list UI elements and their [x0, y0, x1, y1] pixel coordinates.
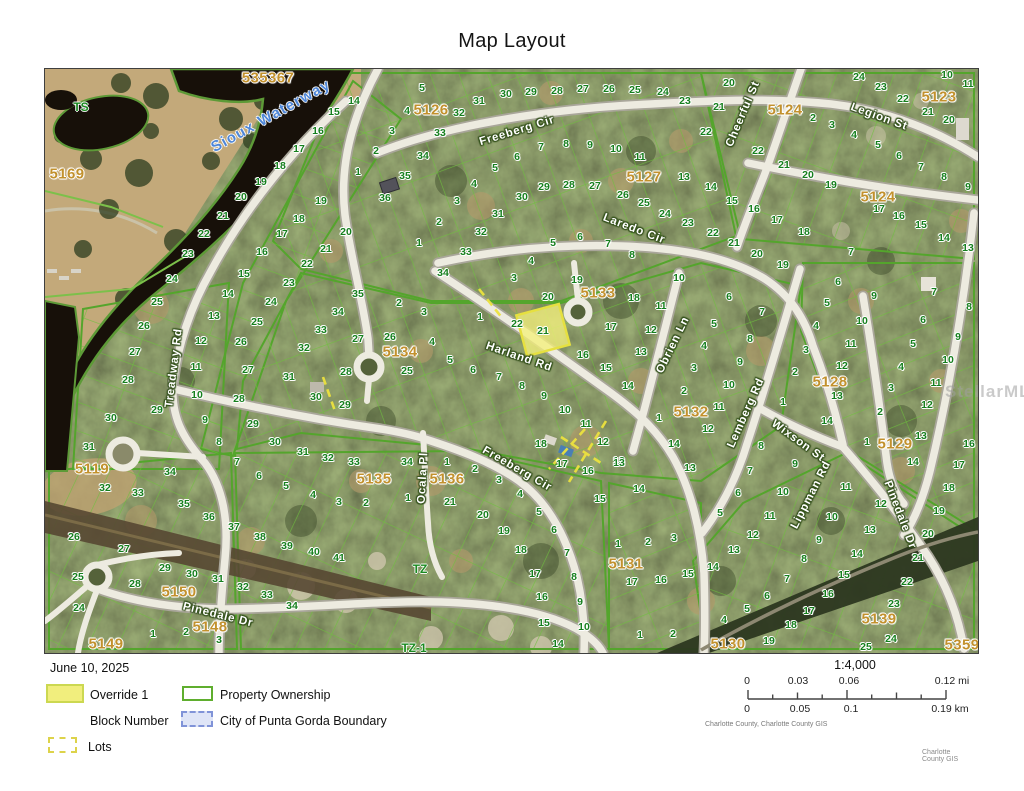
page-title: Map Layout: [0, 30, 1024, 53]
legend-override-label: Override 1: [90, 688, 148, 702]
lots-swatch: [48, 737, 77, 753]
map-canvas[interactable]: 1415161718192021222311918171620212254313…: [44, 68, 979, 654]
override-swatch: [46, 684, 84, 703]
scalebar-graphic: [747, 689, 951, 701]
scale-ratio: 1:4,000: [834, 658, 876, 672]
page: Map Layout: [0, 0, 1024, 791]
scale-tick: 0.06: [839, 675, 859, 687]
credit-attribution: Charlotte County, Charlotte County GIS: [705, 721, 827, 728]
scale-tick: 0: [744, 703, 750, 715]
scale-tick: 0.05: [790, 703, 810, 715]
legend-city-label: City of Punta Gorda Boundary: [220, 714, 387, 728]
city-boundary-swatch: [181, 711, 213, 727]
legend-property-label: Property Ownership: [220, 688, 330, 702]
credit-gis: Charlotte County GIS: [922, 749, 973, 763]
scale-tick: 0.03: [788, 675, 808, 687]
scale-tick: 0.1: [844, 703, 859, 715]
property-ownership-swatch: [182, 686, 213, 701]
legend-block-label: Block Number: [90, 714, 169, 728]
scale-tick: 0.12 mi: [935, 675, 969, 687]
scalebar: 1:4,000 00.030.060.12 mi 00.050.10.19 km: [740, 658, 1010, 728]
scale-tick: 0: [744, 675, 750, 687]
scale-tick: 0.19 km: [931, 703, 968, 715]
map-graphic: [45, 69, 978, 653]
legend-lots-label: Lots: [88, 740, 112, 754]
map-date: June 10, 2025: [50, 661, 129, 675]
